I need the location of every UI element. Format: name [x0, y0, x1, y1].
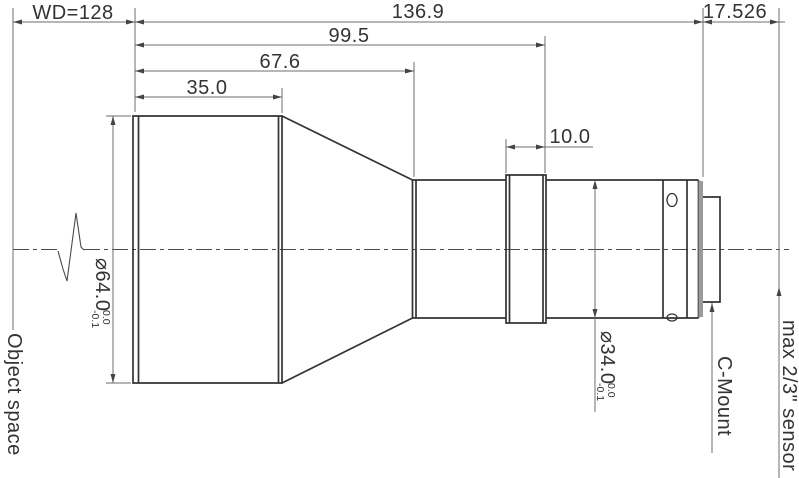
dim-10-0-label: 10.0 [550, 126, 591, 148]
dim-total-length-label: 136.9 [392, 1, 445, 23]
dim-99-5-label: 99.5 [329, 25, 370, 47]
lens-technical-drawing-page: WD=128 136.9 17.526 99.5 67.6 35.0 10.0 … [0, 0, 799, 478]
drawing-background [0, 0, 799, 478]
c-mount-label: C-Mount [713, 356, 735, 436]
rear-diameter-value: ⌀34.0 [596, 331, 618, 384]
max-sensor-label: max 2/3" sensor [778, 320, 799, 471]
dim-working-distance-label: WD=128 [32, 2, 113, 24]
rear-diameter-callout: ⌀34.0 0.0 -0.1 [594, 331, 618, 401]
dim-67-6-label: 67.6 [260, 51, 301, 73]
dim-flange-distance-label: 17.526 [703, 1, 767, 23]
mount-flange-face [699, 181, 704, 317]
c-mount-annotation: C-Mount [713, 356, 735, 436]
object-space-label: Object space [3, 333, 25, 456]
front-diameter-callout: ⌀64.0 0.0 -0.1 [89, 258, 113, 328]
front-diameter-value: ⌀64.0 [91, 258, 113, 311]
front-diameter-tol-lower: -0.1 [89, 310, 101, 328]
max-sensor-annotation: max 2/3" sensor [778, 320, 799, 471]
dim-35-0-label: 35.0 [187, 77, 228, 99]
rear-diameter-tol-lower: -0.1 [594, 383, 606, 401]
object-space-annotation: Object space [3, 333, 25, 456]
lens-technical-drawing: WD=128 136.9 17.526 99.5 67.6 35.0 10.0 … [0, 0, 799, 478]
